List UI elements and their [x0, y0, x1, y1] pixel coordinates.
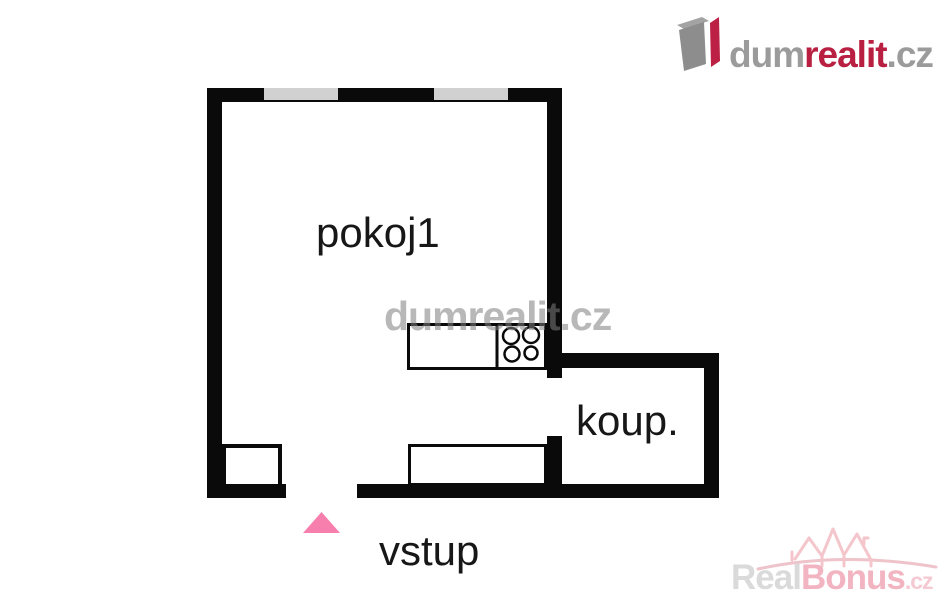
brand-text-realit: realit	[804, 34, 886, 75]
room-label-pokoj1: pokoj1	[316, 212, 440, 254]
window-top-left	[264, 88, 338, 100]
kitchen-lower-counter	[410, 446, 546, 485]
room-label-koup: koup.	[576, 400, 679, 442]
realbonus-text-bonus: Bonus	[801, 558, 905, 597]
floorplan-page: pokoj1 koup. vstup dumrealit.cz dumreali…	[0, 0, 947, 600]
realbonus-watermark: RealBonus.cz	[731, 498, 947, 598]
wall-left	[207, 88, 222, 498]
brand-wordmark: dumrealit.cz	[729, 36, 933, 73]
entrance-label: vstup	[379, 530, 479, 572]
cube-front-face	[679, 22, 706, 71]
realbonus-text-real: Real	[731, 558, 801, 597]
stove-burner	[505, 347, 520, 362]
center-watermark-text: dumrealit.cz	[384, 296, 611, 337]
brand-text-dum: dum	[729, 34, 804, 75]
wall-top	[207, 88, 562, 102]
brand-text-cz: .cz	[887, 34, 933, 75]
corner-fixture	[224, 446, 280, 486]
wall-bottom-right	[357, 484, 719, 498]
dumrealit-logo: dumrealit.cz	[676, 14, 941, 78]
realbonus-wordmark: RealBonus.cz	[731, 560, 933, 595]
realbonus-text-cz: .cz	[905, 568, 933, 594]
window-top-right	[434, 88, 508, 100]
stove-burner	[525, 347, 538, 360]
wall-bathroom-top	[547, 353, 719, 368]
entrance-arrow-icon	[303, 512, 340, 533]
cube-red-face	[710, 17, 720, 67]
wall-door-jamb	[547, 436, 562, 498]
dumrealit-cube-icon	[676, 14, 724, 78]
wall-bathroom-right	[704, 353, 719, 498]
